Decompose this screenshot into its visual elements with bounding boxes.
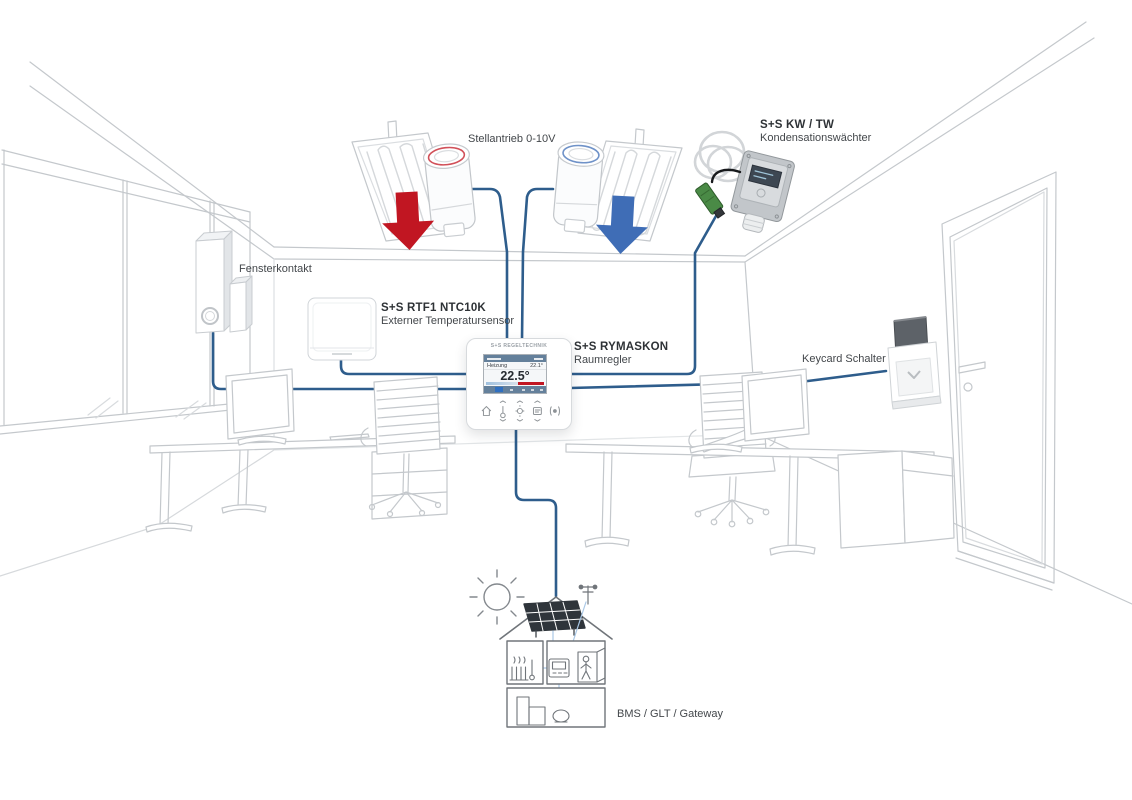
label-actuator: Stellantrieb 0-10V <box>468 133 555 146</box>
door-keyhole <box>964 383 972 391</box>
thermostat-display: Heizung 22.1° 22.5° <box>483 354 547 394</box>
label-external-sensor: S+S RTF1 NTC10K Externer Temperatursenso… <box>381 302 514 328</box>
scale-bar-cold <box>486 382 518 385</box>
display-header <box>484 355 546 362</box>
temperature-button-icon[interactable] <box>497 400 509 422</box>
label-keycard: Keycard Schalter <box>802 353 886 366</box>
wire-bms <box>516 428 556 596</box>
label-room-controller: S+S RYMASKON Raumregler <box>574 341 668 367</box>
display-mode-value: 22.1° <box>530 363 543 369</box>
condensation-probe <box>695 182 727 220</box>
room-automation-diagram: Stellantrieb 0-10V S+S KW / TW Kondensat… <box>0 0 1132 800</box>
label-window-contact: Fensterkontakt <box>239 263 312 276</box>
presence-button-icon[interactable] <box>549 404 561 418</box>
menu-button-icon[interactable] <box>531 400 544 422</box>
external-sensor-subtitle: Externer Temperatursensor <box>381 315 514 328</box>
monitor-left <box>226 369 294 445</box>
room-controller-subtitle: Raumregler <box>574 354 668 367</box>
door-threshold <box>956 551 1054 590</box>
room-structure <box>0 22 1132 604</box>
condensation-subtitle: Kondensationswächter <box>760 132 871 145</box>
floor-edge-left <box>0 450 274 576</box>
bms-house <box>470 570 612 727</box>
weather-mast-icon <box>579 585 597 604</box>
door-handle <box>959 362 985 373</box>
ceiling-edge-back <box>274 247 745 262</box>
cabinet-left <box>372 448 447 519</box>
rtf1-sensor-device <box>308 298 376 360</box>
condensation-sensor-device <box>695 132 796 237</box>
actuator-right <box>551 140 605 234</box>
display-scale-bar <box>486 382 544 385</box>
thermostat-brand: S+S REGELTECHNIK <box>467 343 571 349</box>
room-controller-title: S+S RYMASKON <box>574 341 668 354</box>
window-contact-device <box>196 231 252 333</box>
footer-active-chip <box>495 387 503 392</box>
door <box>942 172 1056 590</box>
thermostat-buttons <box>477 399 563 423</box>
display-footer <box>484 386 546 393</box>
window-contact-label-text: Fensterkontakt <box>239 263 312 275</box>
wire-external-sensor <box>341 360 466 374</box>
rymaskon-thermostat: S+S REGELTECHNIK Heizung 22.1° 22.5° <box>466 338 572 430</box>
actuator-label-text: Stellantrieb 0-10V <box>468 133 555 145</box>
scale-bar-hot <box>518 382 544 385</box>
home-button-icon[interactable] <box>480 404 493 418</box>
keycard-label-text: Keycard Schalter <box>802 353 886 365</box>
keycard-switch-device <box>888 317 941 409</box>
label-bms: BMS / GLT / Gateway <box>617 708 723 721</box>
wire-actuator-right <box>522 189 553 340</box>
light-button-icon[interactable] <box>514 400 526 422</box>
external-sensor-title: S+S RTF1 NTC10K <box>381 302 514 315</box>
bms-label-text: BMS / GLT / Gateway <box>617 708 723 720</box>
ceiling-edge-left <box>30 62 274 259</box>
condensation-title: S+S KW / TW <box>760 119 871 132</box>
label-condensation: S+S KW / TW Kondensationswächter <box>760 119 871 145</box>
sun-icon <box>470 570 524 624</box>
cabinet-right <box>838 451 954 548</box>
